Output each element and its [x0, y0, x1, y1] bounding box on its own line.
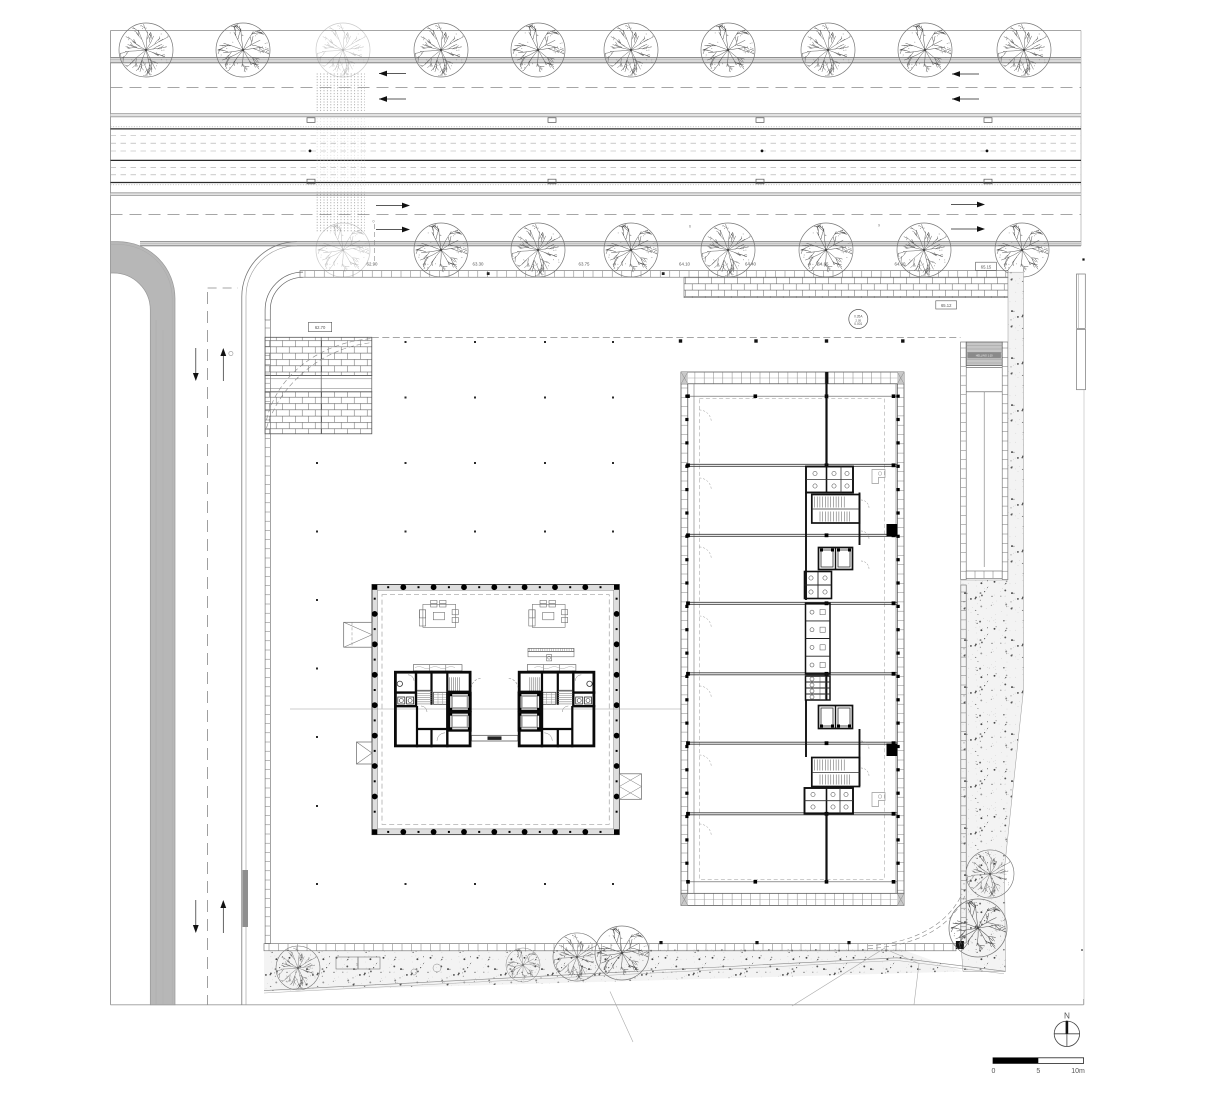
svg-text:64.40: 64.40: [745, 261, 757, 266]
svg-text:10m: 10m: [1071, 1068, 1085, 1075]
svg-text:65.12: 65.12: [941, 303, 952, 308]
svg-text:6: 6: [689, 225, 691, 229]
svg-text:HELLING 1:10: HELLING 1:10: [976, 354, 993, 358]
svg-text:64.10: 64.10: [679, 261, 691, 266]
svg-text:63.75: 63.75: [579, 261, 591, 266]
svg-text:9: 9: [878, 224, 880, 228]
svg-text:5: 5: [1036, 1068, 1040, 1075]
svg-text:0.001: 0.001: [854, 322, 862, 326]
svg-text:65.15: 65.15: [981, 265, 992, 270]
svg-text:0: 0: [992, 1068, 996, 1075]
svg-text:62.90: 62.90: [367, 261, 379, 266]
svg-text:0: 0: [373, 220, 375, 224]
svg-text:1: 1: [356, 963, 358, 967]
svg-text:N: N: [1064, 1012, 1070, 1021]
svg-text:62.70: 62.70: [315, 325, 326, 330]
svg-text:63.30: 63.30: [473, 261, 485, 266]
svg-text:64.90: 64.90: [895, 261, 907, 266]
svg-text:64.65: 64.65: [818, 261, 830, 266]
